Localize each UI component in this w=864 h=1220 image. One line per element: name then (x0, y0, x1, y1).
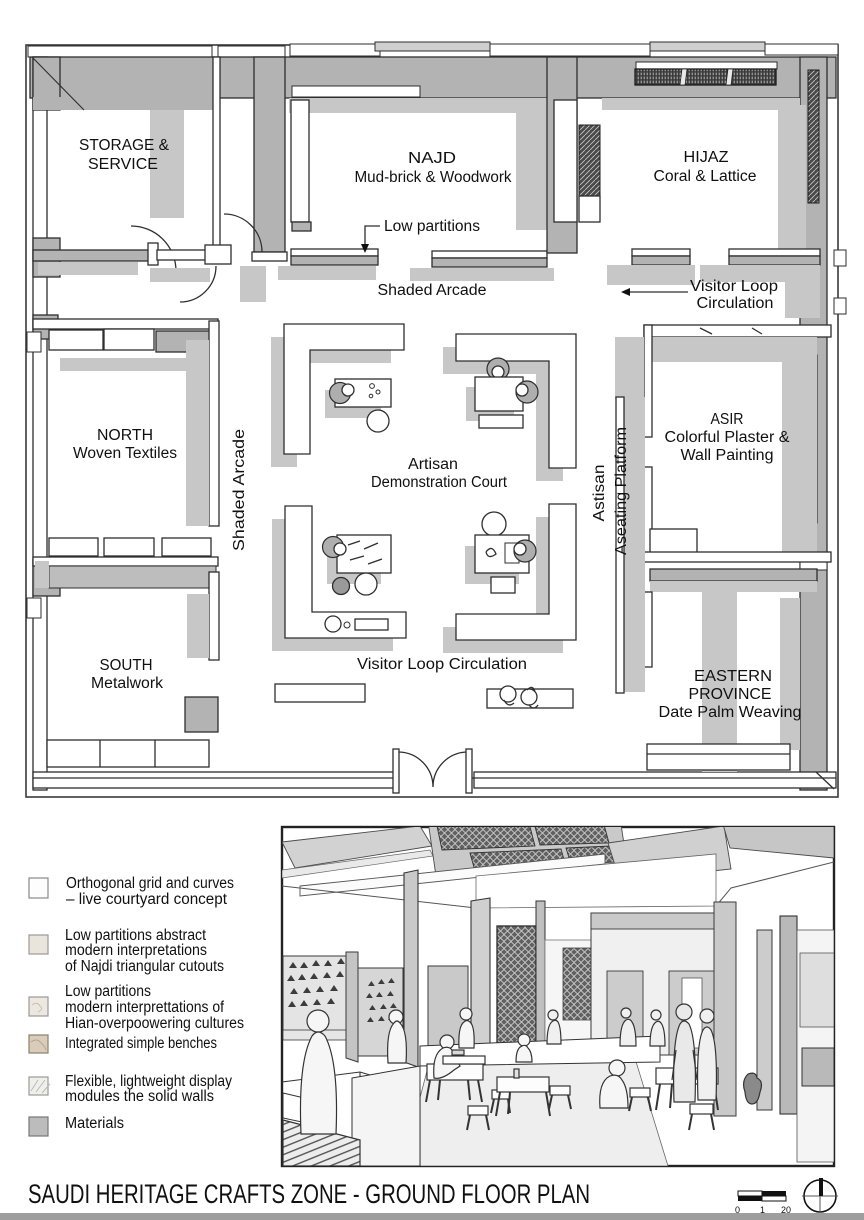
svg-text:Orthogonal grid and curves: Orthogonal grid and curves (66, 875, 234, 892)
svg-text:– live courtyard concept: – live courtyard concept (66, 891, 228, 908)
svg-text:Demonstration Court: Demonstration Court (371, 474, 508, 491)
svg-text:Circulation: Circulation (697, 295, 774, 312)
svg-text:Shaded Arcade: Shaded Arcade (378, 282, 487, 299)
svg-text:NORTH: NORTH (97, 427, 153, 444)
svg-text:Coral & Lattice: Coral & Lattice (654, 168, 757, 185)
svg-text:of Najdi triangular cutouts: of Najdi triangular cutouts (65, 958, 224, 975)
svg-text:Artisan: Artisan (408, 456, 458, 473)
svg-text:Low partitions: Low partitions (384, 218, 480, 235)
svg-text:Astisan: Astisan (591, 465, 608, 522)
svg-text:Materials: Materials (65, 1115, 124, 1132)
svg-text:Visitor Loop: Visitor Loop (690, 278, 778, 295)
svg-text:modern interpretations: modern interpretations (65, 942, 207, 959)
svg-text:Shaded Arcade: Shaded Arcade (231, 429, 248, 551)
svg-text:HIJAZ: HIJAZ (684, 149, 729, 166)
svg-text:SOUTH: SOUTH (100, 657, 153, 674)
svg-text:ASIR: ASIR (711, 411, 744, 428)
svg-text:Low partitions: Low partitions (65, 983, 151, 1000)
svg-text:Date Palm Weaving: Date Palm Weaving (659, 704, 802, 721)
svg-text:modules the solid walls: modules the solid walls (65, 1088, 214, 1105)
svg-text:Woven Textiles: Woven Textiles (73, 445, 177, 462)
svg-text:Integrated simple benches: Integrated simple benches (65, 1035, 217, 1052)
svg-text:Visitor Loop Circulation: Visitor Loop Circulation (357, 656, 527, 673)
svg-text:Hian-overpoowering cultures: Hian-overpoowering cultures (65, 1015, 244, 1032)
svg-text:Colorful Plaster &: Colorful Plaster & (665, 429, 791, 446)
svg-text:SAUDI HERITAGE CRAFTS ZONE - G: SAUDI HERITAGE CRAFTS ZONE - GROUND FLOO… (28, 1179, 590, 1209)
svg-text:PROVINCE: PROVINCE (689, 686, 772, 703)
svg-text:STORAGE &: STORAGE & (79, 137, 170, 154)
svg-text:Wall Painting: Wall Painting (681, 447, 774, 464)
svg-text:Metalwork: Metalwork (91, 675, 163, 692)
svg-text:modern interprettations of: modern interprettations of (65, 999, 225, 1016)
svg-text:Mud-brick & Woodwork: Mud-brick & Woodwork (355, 169, 512, 186)
svg-text:Aseating Platform: Aseating Platform (613, 427, 630, 555)
svg-text:NAJD: NAJD (408, 150, 456, 167)
svg-text:EASTERN: EASTERN (694, 668, 772, 685)
svg-text:SERVICE: SERVICE (88, 156, 158, 173)
